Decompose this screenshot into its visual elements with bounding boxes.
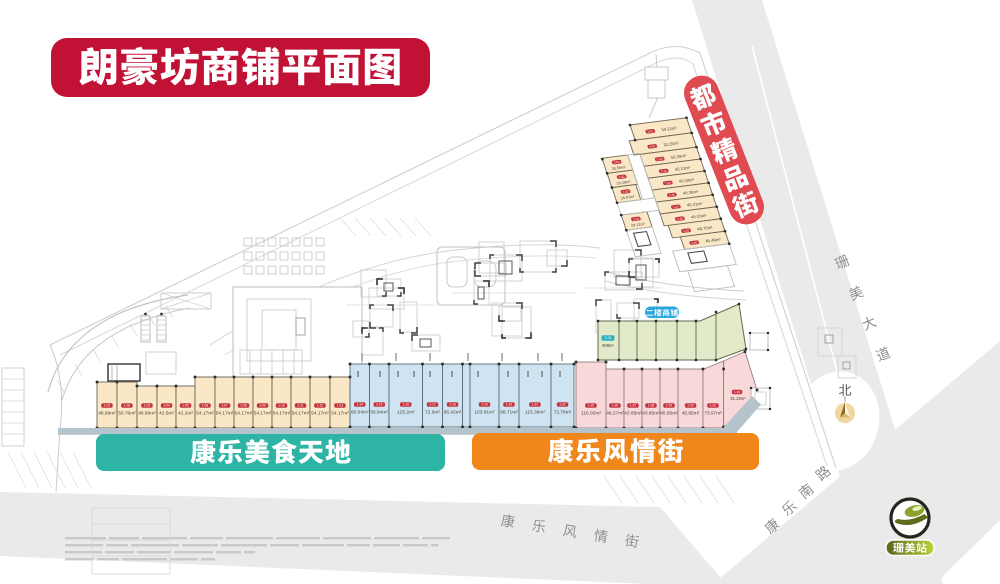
svg-text:1-19: 1-19 [481, 403, 488, 407]
svg-text:56.84m²: 56.84m² [370, 410, 388, 416]
svg-text:46.86m²: 46.86m² [138, 411, 156, 417]
svg-text:2-01: 2-01 [604, 336, 611, 340]
svg-text:68.71m²: 68.71m² [500, 410, 518, 416]
svg-text:1-18: 1-18 [449, 403, 456, 407]
svg-text:608m²: 608m² [602, 343, 614, 348]
svg-text:43.85m²: 43.85m² [624, 411, 642, 417]
svg-text:45.85m²: 45.85m² [660, 411, 678, 417]
svg-text:50.76m²: 50.76m² [118, 411, 136, 417]
svg-text:1-17: 1-17 [429, 403, 436, 407]
svg-text:91.25m²: 91.25m² [730, 396, 746, 401]
svg-text:1-28: 1-28 [648, 404, 655, 408]
svg-text:46.27m²: 46.27m² [606, 411, 624, 417]
svg-text:54.17m²: 54.17m² [292, 411, 310, 417]
svg-text:1-06: 1-06 [202, 404, 209, 408]
svg-text:1-04: 1-04 [163, 404, 170, 408]
svg-text:1-14: 1-14 [357, 403, 364, 407]
svg-text:45.85m²: 45.85m² [682, 411, 700, 417]
svg-text:1-29: 1-29 [666, 404, 673, 408]
svg-text:1-25: 1-25 [588, 404, 595, 408]
svg-text:1-27: 1-27 [630, 404, 637, 408]
svg-text:54.17m²: 54.17m² [273, 411, 291, 417]
svg-text:54.17m²: 54.17m² [235, 411, 253, 417]
svg-text:72.6m²: 72.6m² [425, 410, 440, 416]
svg-text:54.17m²: 54.17m² [331, 411, 349, 417]
svg-text:103.81m²: 103.81m² [474, 410, 495, 416]
svg-text:43.85m²: 43.85m² [642, 411, 660, 417]
svg-text:115.38m²: 115.38m² [525, 410, 545, 416]
svg-text:1-03: 1-03 [144, 404, 151, 408]
svg-text:54.17m²: 54.17m² [196, 411, 214, 417]
svg-text:1-22: 1-22 [559, 403, 566, 407]
svg-text:1-05: 1-05 [182, 404, 189, 408]
svg-text:54.17m²: 54.17m² [216, 411, 234, 417]
svg-text:1-02: 1-02 [124, 404, 131, 408]
svg-text:42.5m²: 42.5m² [159, 411, 174, 417]
svg-text:95.42m²: 95.42m² [444, 410, 462, 416]
svg-text:1-11: 1-11 [297, 404, 303, 408]
svg-text:1-13: 1-13 [337, 404, 344, 408]
svg-text:48.89m²: 48.89m² [98, 411, 116, 417]
svg-text:54.17m²: 54.17m² [254, 411, 272, 417]
svg-text:54.17m²: 54.17m² [311, 411, 329, 417]
svg-text:116.03m²: 116.03m² [581, 411, 601, 417]
svg-text:1-16: 1-16 [403, 403, 410, 407]
svg-text:1-30: 1-30 [687, 404, 694, 408]
svg-text:1-07: 1-07 [221, 404, 228, 408]
svg-text:125.2m²: 125.2m² [397, 410, 415, 416]
svg-text:1-12: 1-12 [317, 404, 324, 408]
svg-text:1-31: 1-31 [710, 404, 717, 408]
svg-text:1-09: 1-09 [259, 404, 266, 408]
svg-text:42.2m²: 42.2m² [178, 411, 193, 417]
svg-text:1-20: 1-20 [506, 403, 513, 407]
svg-text:73.97m²: 73.97m² [704, 411, 722, 417]
svg-text:1-26: 1-26 [612, 404, 619, 408]
svg-text:1-08: 1-08 [240, 404, 247, 408]
svg-text:1-01: 1-01 [104, 404, 111, 408]
svg-text:1-15: 1-15 [376, 403, 383, 407]
svg-text:60.04m²: 60.04m² [351, 410, 369, 416]
svg-text:1-10: 1-10 [278, 404, 285, 408]
svg-text:72.76m²: 72.76m² [554, 410, 572, 416]
svg-text:1-21: 1-21 [532, 403, 539, 407]
svg-text:1-33: 1-33 [734, 390, 740, 394]
